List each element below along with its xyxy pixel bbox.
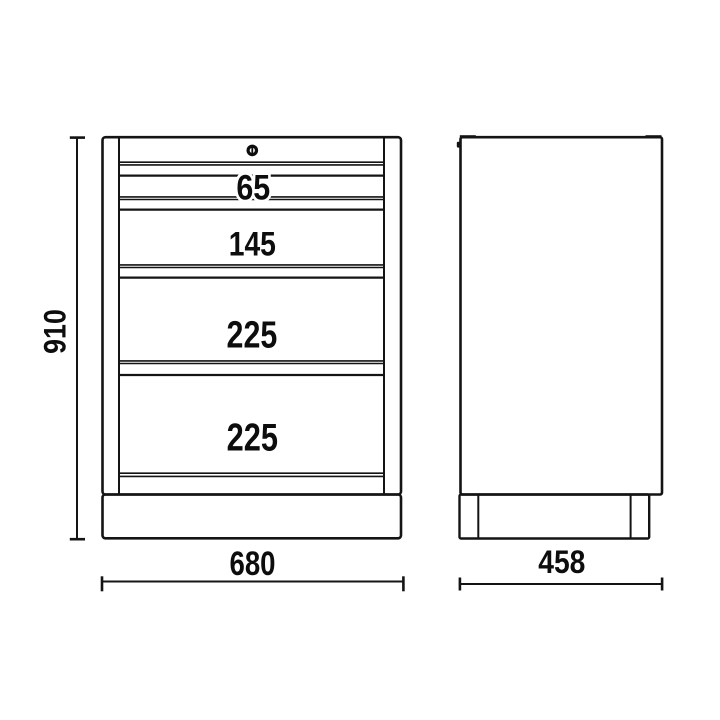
svg-text:225: 225 [227,416,278,459]
svg-text:225: 225 [227,315,278,357]
svg-text:910: 910 [39,309,73,354]
svg-text:680: 680 [229,544,275,583]
svg-text:65: 65 [236,167,270,206]
svg-text:458: 458 [538,544,585,580]
svg-text:145: 145 [229,224,276,263]
